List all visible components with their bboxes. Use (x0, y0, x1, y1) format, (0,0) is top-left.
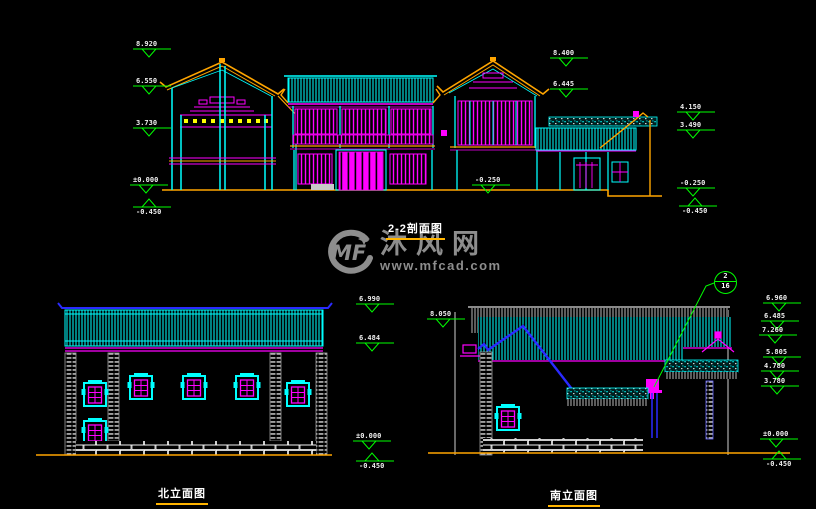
section-title: 2-2剖面图 (386, 220, 445, 240)
elevation-marker: 6.445 (550, 80, 588, 98)
elevation-marker: 7.260 (759, 326, 797, 344)
elevation-marker-icon (427, 318, 465, 328)
elevation-value: 6.484 (359, 334, 380, 342)
elevation-value: 6.990 (359, 295, 380, 303)
elevation-marker-icon (761, 385, 799, 395)
elevation-marker: -0.250 (472, 176, 510, 194)
elevation-marker-icon (760, 438, 798, 448)
callout-detail-number: 2 (715, 272, 736, 282)
elevation-value: ±0.000 (133, 176, 158, 184)
callout-sheet-number: 16 (715, 282, 736, 291)
elevation-marker: -0.250 (677, 179, 715, 197)
elevation-value: 8.920 (136, 40, 157, 48)
elevation-value: ±0.000 (763, 430, 788, 438)
elevation-marker-icon (356, 342, 394, 352)
elevation-marker: 8.920 (133, 40, 171, 58)
elevation-value: 3.730 (136, 119, 157, 127)
elevation-marker: ±0.000 (130, 176, 168, 194)
elevation-marker: 6.990 (356, 295, 394, 313)
elevation-marker-icon (356, 303, 394, 313)
elevation-marker-icon (679, 197, 717, 207)
elevation-marker-icon (133, 198, 171, 208)
elevation-value: 6.445 (553, 80, 574, 88)
elevation-marker-icon (677, 187, 715, 197)
elevation-marker-icon (133, 127, 171, 137)
elevation-marker-icon (759, 334, 797, 344)
elevation-value: 8.400 (553, 49, 574, 57)
elevation-marker: -0.450 (679, 197, 717, 215)
elevation-value: 8.050 (430, 310, 451, 318)
elevation-value: 5.805 (766, 348, 787, 356)
elevation-value: 3.780 (764, 377, 785, 385)
elevation-marker: 4.150 (677, 103, 715, 121)
elevation-marker-icon (763, 302, 801, 312)
elevation-marker: 3.730 (133, 119, 171, 137)
elevation-marker: 6.550 (133, 77, 171, 95)
south-elevation-drawing (428, 283, 790, 455)
elevation-value: 3.490 (680, 121, 701, 129)
elevation-value: -0.250 (475, 176, 500, 184)
north-elevation-title: 北立面图 (156, 485, 208, 505)
elevation-marker: -0.450 (356, 452, 394, 470)
elevation-marker-icon (550, 88, 588, 98)
elevation-value: -0.450 (682, 207, 707, 215)
elevation-marker-icon (356, 452, 394, 462)
elevation-value: -0.450 (136, 208, 161, 216)
elevation-marker-icon (677, 129, 715, 139)
elevation-marker: 8.400 (550, 49, 588, 67)
south-elevation-title: 南立面图 (548, 487, 600, 507)
elevation-marker: -0.450 (763, 450, 801, 468)
elevation-marker: ±0.000 (760, 430, 798, 448)
cad-screenshot: MF 沐风网 www.mfcad.com 2-2剖面图 北立面图 南立面图 2 … (0, 0, 816, 509)
elevation-value: -0.450 (359, 462, 384, 470)
elevation-marker: 3.780 (761, 377, 799, 395)
elevation-value: 6.960 (766, 294, 787, 302)
elevation-value: 7.260 (762, 326, 783, 334)
elevation-marker: 6.484 (356, 334, 394, 352)
elevation-marker-icon (677, 111, 715, 121)
elevation-value: -0.450 (766, 460, 791, 468)
elevation-marker-icon (133, 85, 171, 95)
elevation-marker: 6.960 (763, 294, 801, 312)
elevation-marker: 8.050 (427, 310, 465, 328)
elevation-marker-icon (133, 48, 171, 58)
elevation-value: 6.485 (764, 312, 785, 320)
elevation-value: ±0.000 (356, 432, 381, 440)
elevation-marker-icon (550, 57, 588, 67)
elevation-value: -0.250 (680, 179, 705, 187)
elevation-marker: ±0.000 (353, 432, 391, 450)
elevation-value: 4.150 (680, 103, 701, 111)
elevation-marker-icon (353, 440, 391, 450)
elevation-marker-icon (763, 450, 801, 460)
elevation-marker: 3.490 (677, 121, 715, 139)
elevation-marker: -0.450 (133, 198, 171, 216)
section-drawing (160, 57, 662, 196)
elevation-value: 6.550 (136, 77, 157, 85)
elevation-marker-icon (130, 184, 168, 194)
elevation-value: 4.780 (764, 362, 785, 370)
north-elevation-drawing (36, 303, 332, 455)
detail-callout: 2 16 (714, 271, 737, 294)
cad-canvas (0, 0, 816, 509)
elevation-marker-icon (472, 184, 510, 194)
